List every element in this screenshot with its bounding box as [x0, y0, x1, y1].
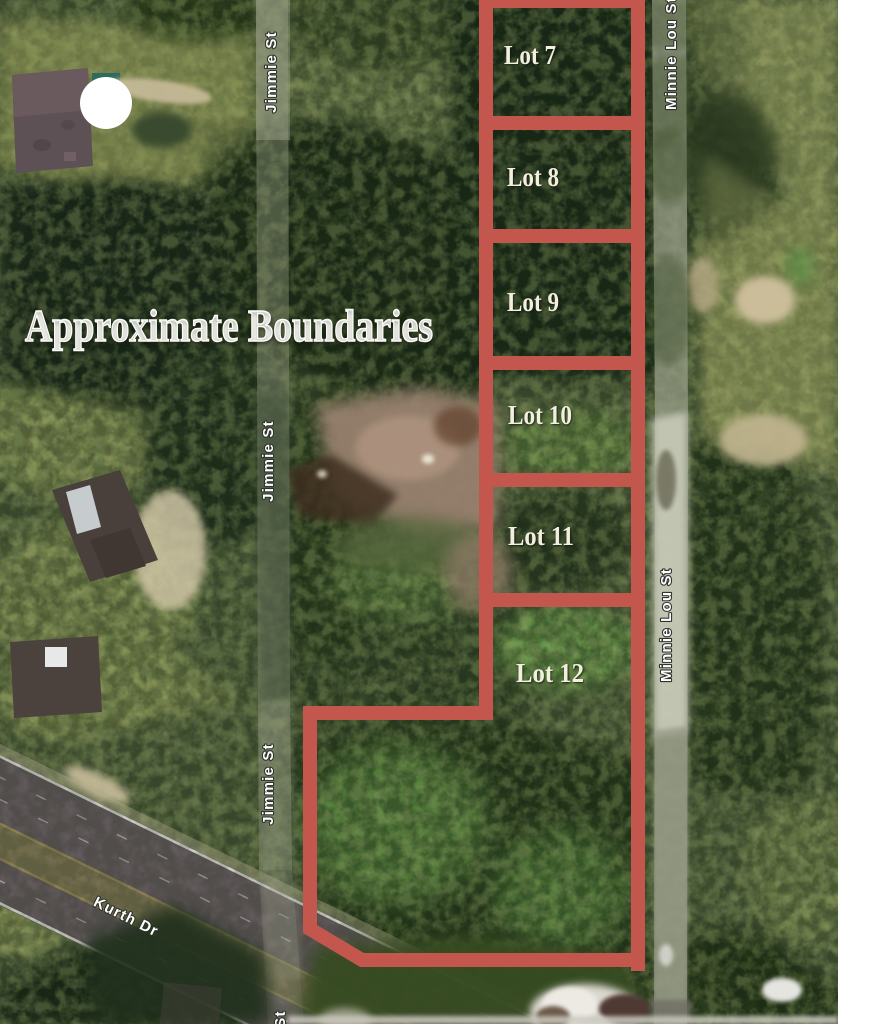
- svg-text:Jimmie St: Jimmie St: [260, 743, 277, 825]
- svg-text:Jimmie St: Jimmie St: [272, 1010, 289, 1024]
- svg-text:Lot 10: Lot 10: [508, 400, 572, 430]
- svg-text:Minnie Lou St: Minnie Lou St: [663, 0, 680, 110]
- svg-text:Minnie Lou St: Minnie Lou St: [658, 568, 675, 682]
- svg-text:Jimmie St: Jimmie St: [260, 420, 277, 502]
- svg-text:Lot 9: Lot 9: [507, 287, 559, 317]
- svg-text:Lot 12: Lot 12: [516, 658, 584, 688]
- svg-text:Lot 7: Lot 7: [504, 40, 556, 70]
- svg-text:Lot 11: Lot 11: [508, 521, 574, 551]
- svg-text:Lot 8: Lot 8: [507, 162, 559, 192]
- svg-text:Jimmie St: Jimmie St: [263, 31, 280, 113]
- svg-text:Approximate Boundaries: Approximate Boundaries: [25, 300, 433, 351]
